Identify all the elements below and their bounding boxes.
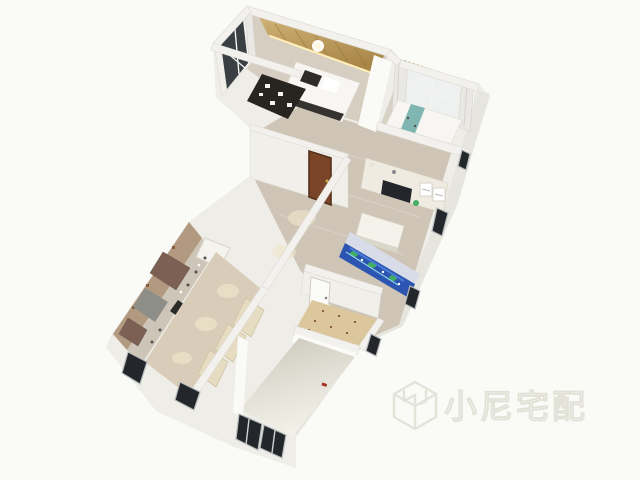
watermark-text: 小尼宅配 bbox=[444, 387, 588, 426]
watermark: 小尼宅配 bbox=[394, 382, 588, 429]
plant bbox=[413, 200, 419, 206]
floorplan-svg: 小尼宅配 bbox=[0, 0, 640, 480]
floorplan-render: 小尼宅配 bbox=[0, 0, 640, 480]
vase bbox=[370, 163, 375, 168]
watermark-cube-logo bbox=[394, 382, 436, 429]
bathroom-door-handle bbox=[325, 297, 328, 300]
